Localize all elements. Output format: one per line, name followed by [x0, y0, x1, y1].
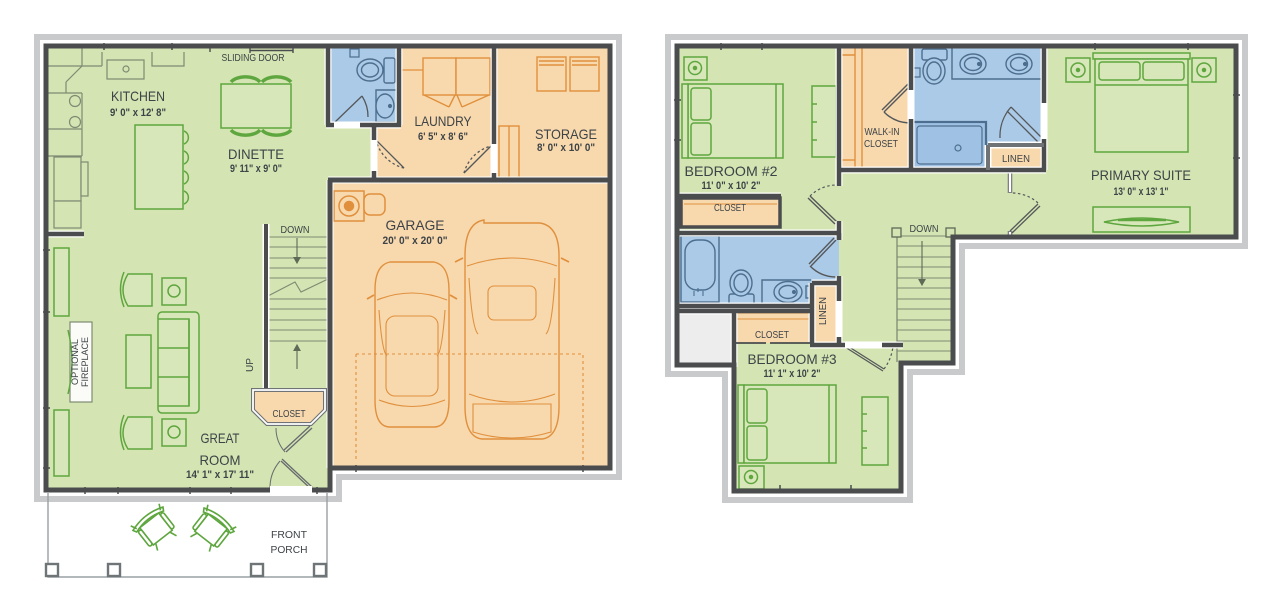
svg-text:BEDROOM #2: BEDROOM #2 — [685, 163, 778, 179]
svg-text:GREAT: GREAT — [201, 430, 240, 446]
svg-text:PORCH: PORCH — [271, 544, 308, 556]
svg-text:13' 0" x 13' 1": 13' 0" x 13' 1" — [1114, 186, 1169, 198]
svg-text:LINEN: LINEN — [1002, 154, 1030, 165]
svg-text:8' 0" x 10' 0": 8' 0" x 10' 0" — [537, 142, 595, 154]
svg-text:DOWN: DOWN — [910, 224, 939, 235]
svg-text:DINETTE: DINETTE — [228, 146, 284, 162]
svg-text:CLOSET: CLOSET — [755, 330, 789, 341]
svg-text:STORAGE: STORAGE — [535, 126, 597, 142]
svg-text:LAUNDRY: LAUNDRY — [415, 113, 473, 129]
svg-text:SLIDING DOOR: SLIDING DOOR — [222, 53, 285, 64]
svg-text:PRIMARY SUITE: PRIMARY SUITE — [1091, 167, 1191, 183]
svg-text:11' 0" x 10' 2": 11' 0" x 10' 2" — [702, 180, 761, 192]
svg-text:UP: UP — [245, 358, 256, 372]
svg-text:GARAGE: GARAGE — [386, 217, 445, 233]
svg-text:CLOSET: CLOSET — [864, 138, 898, 150]
svg-text:ROOM: ROOM — [200, 452, 241, 468]
svg-text:11' 1" x 10' 2": 11' 1" x 10' 2" — [764, 368, 821, 380]
svg-text:CLOSET: CLOSET — [714, 203, 746, 214]
svg-text:FRONT: FRONT — [271, 529, 308, 541]
svg-text:WALK-IN: WALK-IN — [865, 126, 900, 138]
svg-text:OPTIONAL: OPTIONAL — [70, 339, 80, 385]
svg-text:CLOSET: CLOSET — [273, 409, 306, 420]
svg-text:BEDROOM #3: BEDROOM #3 — [748, 351, 837, 367]
svg-text:9' 0" x 12' 8": 9' 0" x 12' 8" — [110, 107, 166, 119]
svg-text:9' 11" x 9' 0": 9' 11" x 9' 0" — [230, 163, 282, 175]
svg-text:DOWN: DOWN — [281, 225, 310, 236]
svg-text:KITCHEN: KITCHEN — [111, 88, 165, 104]
svg-text:20' 0" x 20' 0": 20' 0" x 20' 0" — [383, 235, 448, 247]
svg-text:FIREPLACE: FIREPLACE — [80, 337, 90, 387]
svg-text:LINEN: LINEN — [818, 297, 829, 325]
svg-text:14' 1" x 17' 11": 14' 1" x 17' 11" — [186, 469, 254, 481]
svg-text:6' 5" x 8' 6": 6' 5" x 8' 6" — [418, 131, 468, 143]
